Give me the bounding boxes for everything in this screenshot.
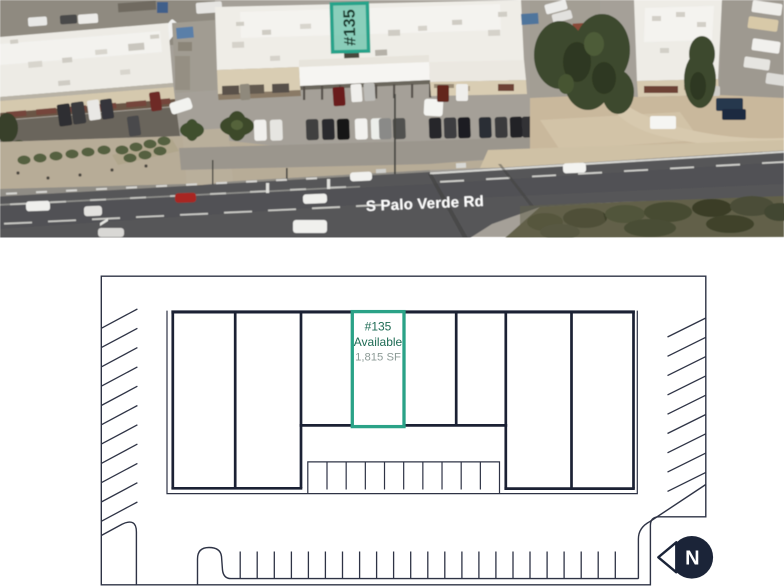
svg-text:Available: Available [354, 335, 403, 349]
svg-text:1,815 SF: 1,815 SF [355, 351, 401, 363]
svg-text:#135: #135 [365, 320, 392, 334]
svg-text:N: N [685, 548, 699, 570]
svg-text:#135: #135 [341, 9, 360, 46]
